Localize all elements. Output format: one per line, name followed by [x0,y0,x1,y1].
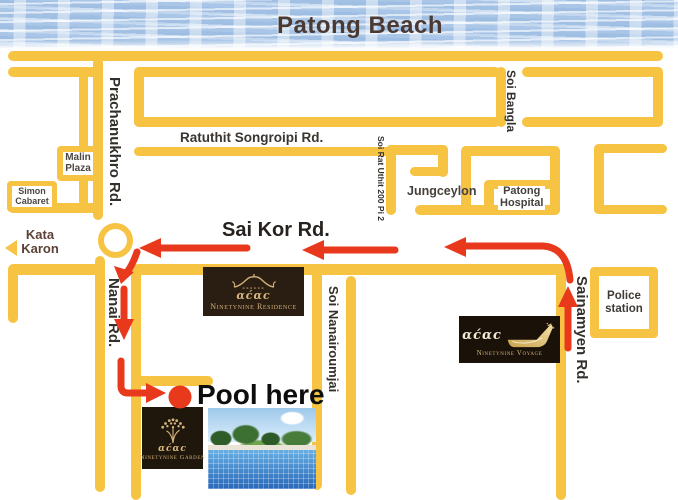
label-soi-nanairoumjai: Soi Nanairoumjai [326,286,341,392]
simon-cabaret-line2: Cabaret [15,196,49,206]
garden-script-mark: αϲ́αϲ [158,444,187,454]
road-hospital-left [461,146,471,215]
patong-map: Patong Beach Malin Plaza Simon Cabaret P… [0,0,678,500]
label-sai-kor: Sai Kor Rd. [222,219,330,242]
label-nanai: Nanai Rd. [105,278,122,347]
patong-hospital-line1: Patong [503,185,540,197]
malin-plaza-line2: Plaza [65,163,91,174]
label-sainamyen: Sainamyen Rd. [573,276,590,384]
residence-script-mark: αϲ́αϲ [236,289,270,302]
road-jung-notch [410,167,448,176]
label-kata-karon: Kata Karon [18,228,62,256]
road-sainamyen [556,266,566,500]
pool-here-label: Pool here [197,379,325,411]
road-rightblock-bottom [594,205,667,214]
voyage-boat-icon [505,323,557,349]
patong-hospital-line2: Hospital [500,197,543,209]
pool-photo [208,408,316,489]
route-arrow-west-2-head [302,240,324,260]
label-jungceylon: Jungceylon [407,184,476,198]
road-left-stub [8,266,18,323]
karon-line: Karon [21,241,59,256]
pool-location-dot [169,386,192,409]
simon-cabaret-box: Simon Cabaret [7,181,57,212]
road-topright-vert [653,67,663,127]
police-line2: station [605,303,643,315]
label-soi-bangla: Soi Bangla [504,70,518,132]
road-second-right [522,67,663,77]
road-prachanukhro [93,58,103,220]
ninetynine-garden-box: αϲ́αϲ Ninetynine Garden [142,407,203,469]
malin-plaza-box: Malin Plaza [57,146,99,181]
pool-photo-water [208,450,316,489]
label-soi-rat-uthit: Soi Rat Uthit 200 Pi 2 [376,136,386,221]
road-rightblock-left [594,144,604,214]
road-hospital-inner-vert [484,180,494,215]
simon-cabaret-line1: Simon [18,186,46,196]
kata-direction-arrow-icon [5,240,17,256]
ninetynine-voyage-box: αϲ́αϲ Ninetynine Voyage [459,316,560,363]
road-ratuthit [134,147,397,156]
label-patong-hospital: Patong Hospital [498,186,545,210]
pool-photo-trees [208,419,316,447]
route-arrow-bent-head [146,383,166,403]
malin-plaza-line1: Malin [65,152,91,163]
road-rightblock-top [594,144,667,153]
beach-shore-fade [0,40,678,50]
road-soi-rat-uthit-vert [386,145,396,215]
voyage-logo-row: αϲ́αϲ [462,323,557,349]
voyage-script-mark: αϲ́αϲ [462,328,502,343]
road-third-right [522,117,663,127]
road-hospital-top [461,146,560,156]
garden-name: Ninetynine Garden [140,454,205,461]
police-line1: Police [607,290,641,302]
residence-name: Ninetynine Residence [210,302,296,311]
road-saikor-left [8,264,101,275]
ninetynine-residence-box: αϲ́αϲ Ninetynine Residence [203,267,304,316]
road-malin-vert [79,72,88,206]
road-beachfront [8,51,663,61]
road-saikor-right [133,264,567,275]
beach-title: Patong Beach [277,12,443,40]
kata-line: Kata [26,227,54,242]
police-station-box: Police station [590,267,658,338]
label-ratuthit: Ratuthit Songroipi Rd. [180,130,323,145]
route-arrow-west-1-head [139,238,161,258]
roundabout-circle [98,223,133,258]
road-block1-top [134,67,500,77]
road-nanai [95,256,105,492]
garden-tree-icon [156,416,190,444]
route-arrow-west-3-head [444,237,466,257]
voyage-name: Ninetynine Voyage [477,349,543,357]
road-midblock-vert [346,276,356,495]
residence-roof-icon [231,273,277,289]
road-block1-bottom [134,117,500,127]
label-prachanukhro: Prachanukhro Rd. [106,77,123,206]
